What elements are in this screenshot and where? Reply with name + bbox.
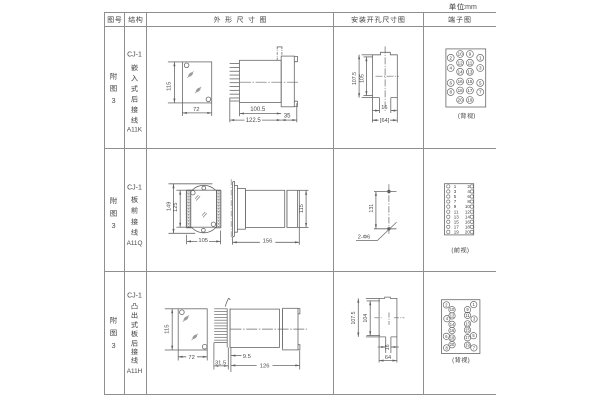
svg-text:20: 20 bbox=[450, 342, 455, 347]
svg-text:126: 126 bbox=[260, 363, 270, 369]
svg-text:6: 6 bbox=[449, 81, 452, 86]
svg-text:16: 16 bbox=[385, 344, 391, 350]
svg-text:A11H: A11H bbox=[127, 368, 143, 375]
svg-text:115: 115 bbox=[167, 82, 173, 91]
svg-text:13: 13 bbox=[465, 321, 470, 326]
svg-text:): ) bbox=[473, 113, 475, 120]
svg-text:19: 19 bbox=[465, 343, 470, 348]
svg-text:19: 19 bbox=[467, 98, 473, 103]
svg-text:9: 9 bbox=[466, 307, 469, 312]
svg-text:149: 149 bbox=[166, 202, 172, 211]
svg-text:12: 12 bbox=[458, 60, 464, 65]
svg-text:2: 2 bbox=[445, 302, 448, 307]
svg-text:15: 15 bbox=[465, 328, 470, 333]
svg-text:125: 125 bbox=[173, 203, 179, 212]
svg-text:9: 9 bbox=[469, 52, 472, 57]
svg-text:(: ( bbox=[451, 247, 454, 254]
svg-text:5: 5 bbox=[472, 333, 475, 338]
svg-text:3: 3 bbox=[479, 66, 482, 71]
svg-text:6: 6 bbox=[445, 334, 448, 339]
svg-text:14: 14 bbox=[450, 322, 455, 327]
svg-text:104: 104 bbox=[363, 314, 369, 323]
svg-text::mm: :mm bbox=[463, 4, 477, 11]
svg-text:1: 1 bbox=[473, 302, 476, 307]
svg-text:2-Φ6: 2-Φ6 bbox=[358, 235, 371, 241]
svg-text:10: 10 bbox=[458, 52, 464, 57]
svg-text:11: 11 bbox=[465, 313, 470, 318]
svg-text:72: 72 bbox=[193, 107, 199, 113]
svg-text:16: 16 bbox=[450, 328, 455, 333]
svg-text:13: 13 bbox=[467, 69, 473, 74]
svg-text:3: 3 bbox=[111, 221, 115, 230]
svg-text:9.5: 9.5 bbox=[243, 354, 251, 360]
svg-text:4: 4 bbox=[446, 316, 449, 321]
svg-text:8: 8 bbox=[445, 345, 448, 350]
svg-text:A11K: A11K bbox=[127, 126, 143, 133]
svg-text:19: 19 bbox=[454, 229, 460, 234]
svg-text:3: 3 bbox=[473, 317, 476, 322]
svg-text:3: 3 bbox=[111, 341, 115, 350]
svg-text:72: 72 bbox=[188, 355, 194, 361]
svg-text:11: 11 bbox=[468, 60, 473, 65]
svg-text:14: 14 bbox=[458, 69, 464, 74]
svg-text:122.5: 122.5 bbox=[246, 118, 262, 124]
svg-text:64: 64 bbox=[385, 355, 391, 361]
svg-text:20: 20 bbox=[458, 98, 464, 103]
svg-text:18: 18 bbox=[458, 88, 464, 93]
svg-text:5: 5 bbox=[479, 81, 482, 86]
svg-text:131: 131 bbox=[369, 204, 375, 213]
svg-text:17: 17 bbox=[467, 88, 473, 93]
svg-text:115: 115 bbox=[165, 325, 171, 334]
svg-text:31.5: 31.5 bbox=[215, 360, 226, 366]
svg-text:CJ-1: CJ-1 bbox=[127, 52, 142, 59]
svg-text:CJ-1: CJ-1 bbox=[127, 185, 142, 192]
svg-text:16: 16 bbox=[381, 105, 387, 111]
svg-text:107.5: 107.5 bbox=[351, 311, 357, 324]
svg-text:7: 7 bbox=[479, 90, 482, 95]
svg-text:17: 17 bbox=[465, 335, 470, 340]
svg-text:105: 105 bbox=[359, 74, 365, 83]
svg-text:): ) bbox=[468, 357, 470, 364]
svg-text:100.5: 100.5 bbox=[250, 107, 266, 113]
svg-text:CJ-1: CJ-1 bbox=[127, 293, 142, 300]
svg-text:4: 4 bbox=[449, 66, 452, 71]
svg-text:16: 16 bbox=[458, 79, 464, 84]
svg-text:105: 105 bbox=[198, 238, 208, 244]
svg-text:3: 3 bbox=[111, 96, 115, 105]
svg-text:1: 1 bbox=[479, 55, 482, 60]
svg-text:7: 7 bbox=[473, 345, 476, 350]
svg-text:107.5: 107.5 bbox=[352, 72, 358, 85]
svg-text:18: 18 bbox=[450, 336, 455, 341]
svg-text:15: 15 bbox=[467, 79, 473, 84]
svg-text:115: 115 bbox=[299, 204, 305, 213]
svg-text:10: 10 bbox=[450, 307, 455, 312]
svg-text:20: 20 bbox=[465, 229, 471, 234]
svg-text:156: 156 bbox=[263, 238, 273, 244]
svg-text:(: ( bbox=[458, 113, 461, 120]
svg-text:2: 2 bbox=[449, 55, 452, 60]
svg-text:(: ( bbox=[452, 357, 455, 364]
svg-text:[64]: [64] bbox=[380, 118, 390, 124]
svg-text:8: 8 bbox=[449, 90, 452, 95]
svg-text:12: 12 bbox=[450, 313, 455, 318]
svg-text:A11Q: A11Q bbox=[127, 240, 143, 247]
svg-text:35: 35 bbox=[284, 114, 291, 120]
svg-text:): ) bbox=[467, 247, 469, 254]
